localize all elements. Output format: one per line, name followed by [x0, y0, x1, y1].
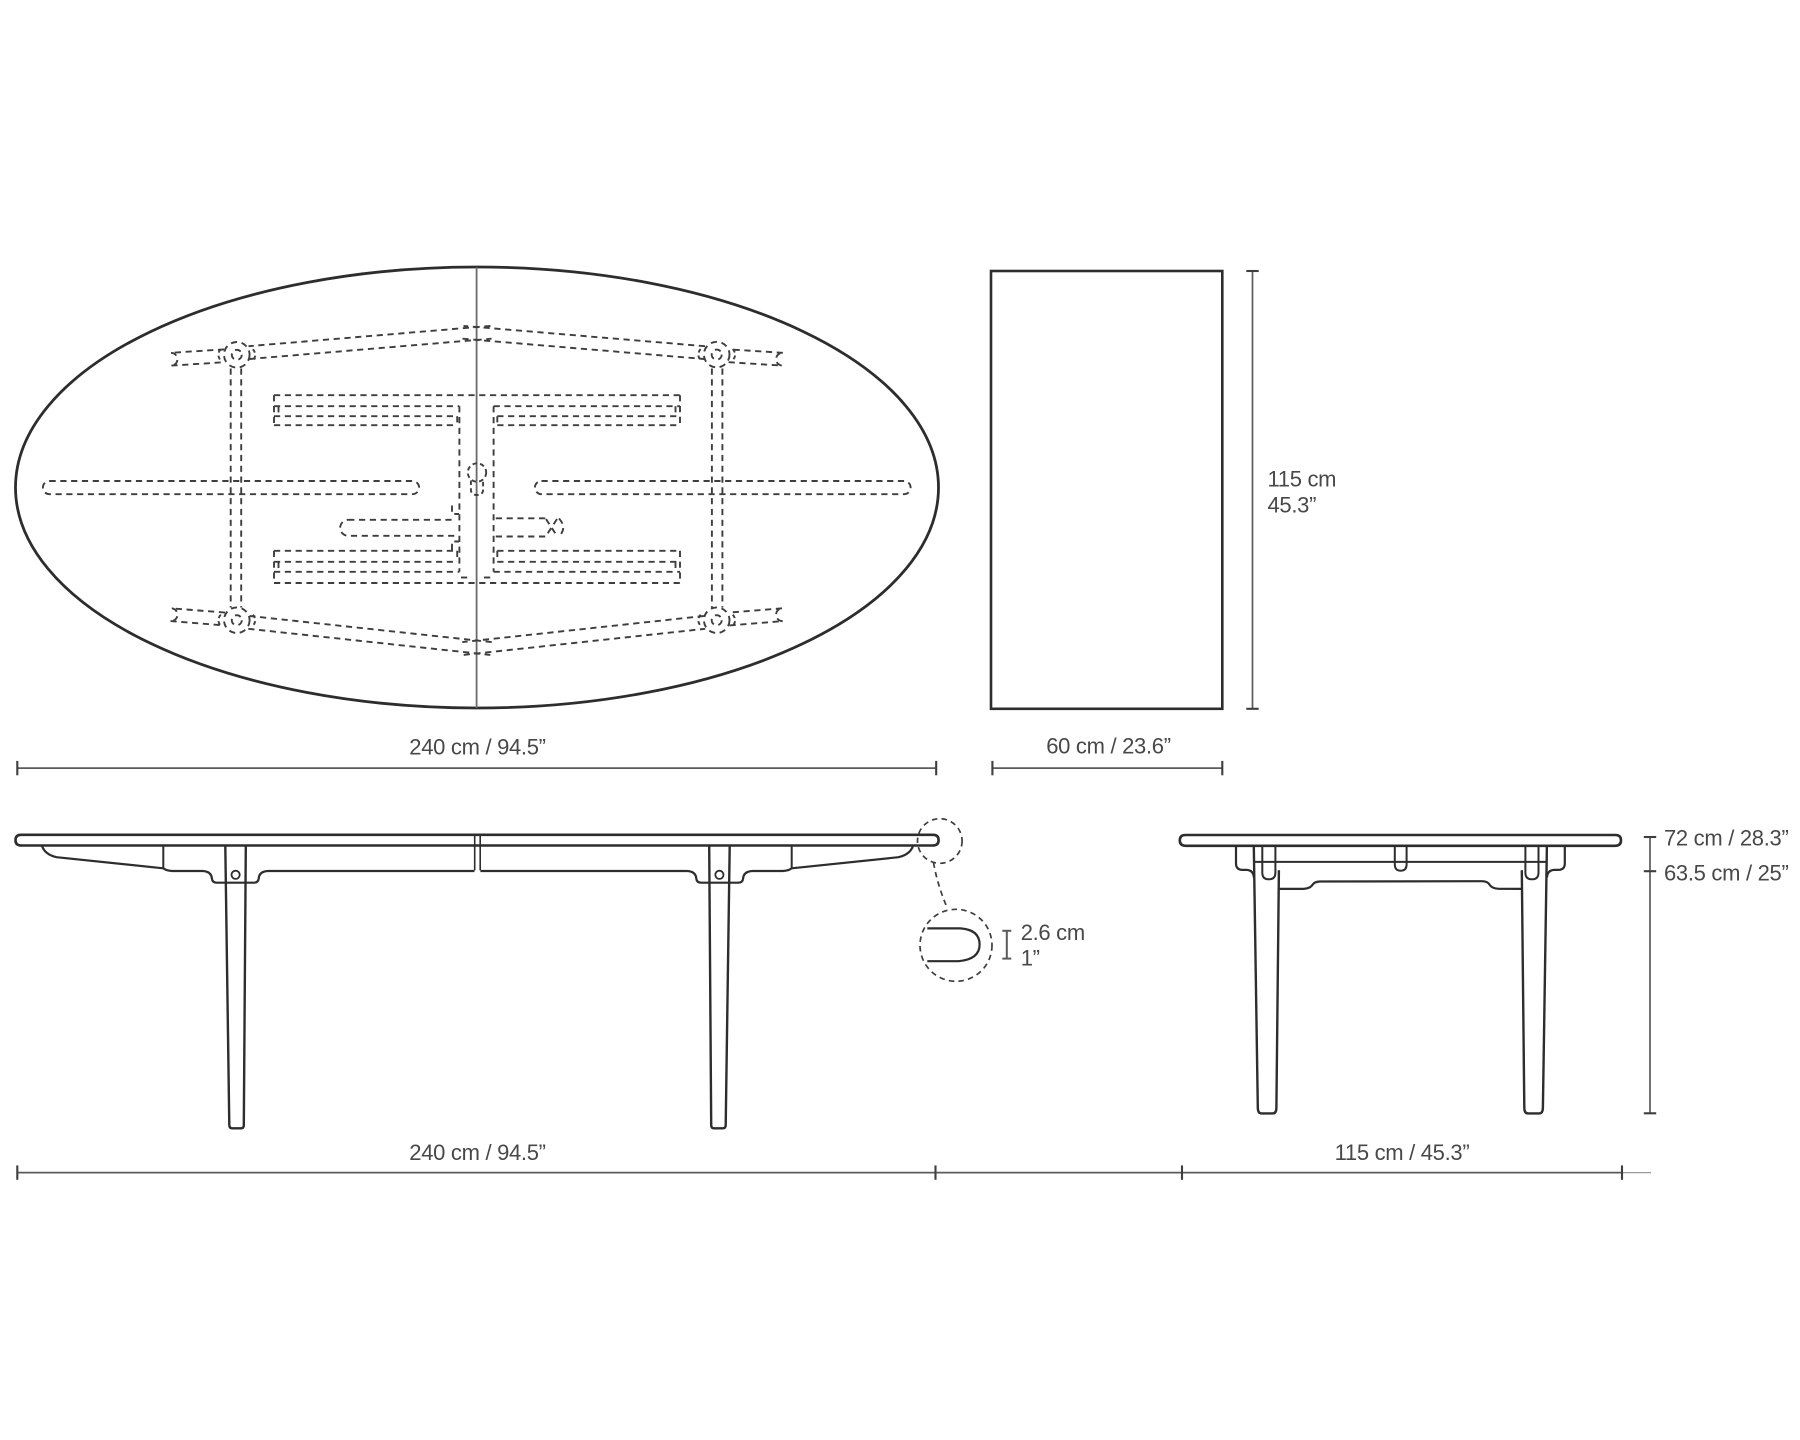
- svg-text:240 cm / 94.5”: 240 cm / 94.5”: [409, 1140, 545, 1165]
- svg-text:60 cm / 23.6”: 60 cm / 23.6”: [1046, 733, 1171, 758]
- svg-text:45.3”: 45.3”: [1268, 492, 1317, 517]
- svg-text:2.6 cm: 2.6 cm: [1021, 920, 1085, 945]
- svg-text:72 cm / 28.3”: 72 cm / 28.3”: [1664, 826, 1789, 851]
- svg-text:115 cm: 115 cm: [1268, 467, 1337, 492]
- svg-text:1”: 1”: [1021, 945, 1040, 970]
- svg-text:63.5 cm / 25”: 63.5 cm / 25”: [1664, 861, 1789, 886]
- svg-text:240 cm / 94.5”: 240 cm / 94.5”: [409, 734, 545, 759]
- svg-text:115 cm / 45.3”: 115 cm / 45.3”: [1335, 1140, 1470, 1165]
